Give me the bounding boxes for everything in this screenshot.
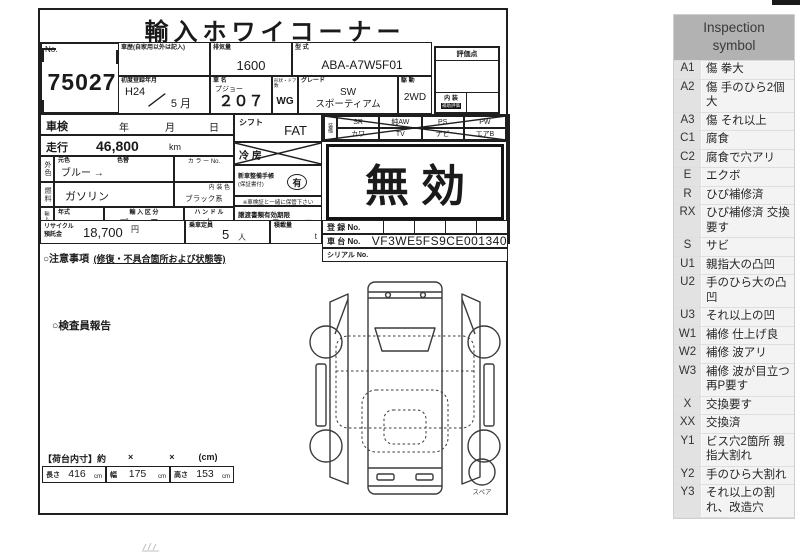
inspection-row-s: Sサビ [674, 238, 794, 256]
score-label: 評価点 [436, 48, 498, 61]
length-value: 416 [68, 468, 86, 480]
load-cell: 積載量 t [270, 220, 322, 244]
inspection-desc: ひび補修済 [702, 187, 794, 204]
inspection-row-x: X交換要す [674, 397, 794, 415]
inspection-desc: 腐食で穴アリ [702, 150, 794, 167]
shaken-label: 車検 [46, 118, 68, 134]
equipment-grid: 装備 SR 純AW PS PW カワ TV ナビ エアB [322, 114, 508, 142]
inspection-code: C2 [674, 150, 702, 167]
inspection-desc: エクボ [702, 168, 794, 185]
keep-note-cell: ※車検証と一緒に保管下さい [234, 196, 322, 206]
screen-corner-fragment [772, 0, 800, 5]
displacement-cell: 排気量 1600 [210, 42, 292, 76]
drive-value: 2WD [399, 92, 431, 103]
inspection-desc: 交換要す [702, 397, 794, 414]
recycle-label-1: リサイクル [44, 224, 74, 231]
windshield [375, 328, 435, 351]
color-cell: 元色 色替 ブルー → [54, 156, 174, 182]
displacement-label: 排気量 [213, 45, 231, 52]
inspector-report-label: ○検査員報告 [52, 318, 111, 333]
inspection-desc: 腐食 [702, 131, 794, 148]
inspection-row-a2: A2傷 手のひら2個大 [674, 80, 794, 113]
inspection-code: Y1 [674, 434, 702, 466]
inspection-row-y2: Y2手のひら大割れ [674, 467, 794, 485]
inspection-desc: それ以上の凹 [702, 308, 794, 325]
ac-cell: 冷 房 [234, 142, 322, 165]
inspection-desc: 手のひら大割れ [702, 467, 794, 484]
inspection-desc: ひび補修済 交換要す [702, 205, 794, 237]
fuel-value: ガソリン [65, 188, 109, 204]
width-box: 幅 175 cm [106, 466, 170, 483]
first-reg-month: 5 月 [171, 95, 191, 111]
inspection-code: RX [674, 205, 702, 237]
width-label: 幅 [110, 472, 117, 480]
inspection-code: S [674, 238, 702, 255]
month-label: 月 [165, 119, 175, 134]
aux-score-label: 補助評価 [441, 103, 461, 109]
inspection-code: A2 [674, 80, 702, 112]
inspection-row-rx: RXひび補修済 交換要す [674, 205, 794, 238]
year-label: 年 [119, 119, 129, 134]
inspection-desc: 傷 手のひら2個大 [702, 80, 794, 112]
inspection-code: Y2 [674, 467, 702, 484]
recycle-unit: 円 [131, 224, 139, 235]
year-model-label: 年式 [58, 210, 70, 217]
length-unit: cm [94, 474, 102, 480]
model-code-label: 型 式 [295, 45, 309, 52]
color-change-label: 色替 [117, 158, 129, 165]
inspection-row-w1: W1補修 仕上げ良 [674, 327, 794, 345]
notes-line: ○注意事項 (修復・不具合箇所および状態等) [43, 249, 226, 267]
model-code-value: ABA-A7W5F01 [293, 58, 431, 72]
right-sill [484, 364, 494, 426]
chassis-no-row: 車 台 No. VF3WE5FS9CE001340 [322, 234, 508, 248]
interior-score-label: 内 装 [444, 96, 458, 103]
auction-sheet: 輸入ホワイコーナー No. 75027 車歴(自家用以外は記入) 排気量 160… [38, 8, 508, 515]
inspection-row-e: Eエクボ [674, 168, 794, 186]
width-unit: cm [158, 474, 166, 480]
inspection-desc: 補修 波が目立つ 再P要す [702, 364, 794, 396]
inspection-row-w2: W2補修 波アリ [674, 345, 794, 363]
inspection-row-r: Rひび補修済 [674, 187, 794, 205]
grade-cell: グレード SW スポーティアム [298, 76, 398, 114]
history-cell: 車歴(自家用以外は記入) [118, 42, 210, 76]
capacity-cell: 乗車定員 5 人 [185, 220, 270, 244]
faint-stamp-mark [140, 541, 162, 553]
car-model-name: ２０７ [211, 90, 271, 111]
inspection-row-c2: C2腐食で穴アリ [674, 150, 794, 168]
mileage-row: 走行 46,800 km [40, 135, 234, 156]
inspection-row-w3: W3補修 波が目立つ 再P要す [674, 364, 794, 397]
capacity-label: 乗車定員 [189, 223, 213, 230]
interior-color-cell: 内 装 色 ブラック系 [174, 182, 234, 207]
interior-color-value: ブラック系 [175, 193, 233, 204]
body-door-cell: 形状・ドア数 WG [272, 76, 298, 114]
recycle-cell: リサイクル 預託金 18,700 円 [40, 220, 185, 244]
service-book-value: 有 [287, 174, 307, 190]
inspection-row-xx: XX交換済 [674, 415, 794, 433]
fuel-side-label: 燃料 [40, 182, 54, 207]
interior-color-label: 内 装 色 [209, 185, 230, 192]
inspection-desc: それ以上の割れ、改造穴 [702, 485, 794, 517]
first-reg-year: H24 [125, 86, 145, 98]
inspection-row-y3: Y3それ以上の割れ、改造穴 [674, 485, 794, 518]
service-book-sub: (保証書付) [238, 180, 264, 188]
reg-no-row: 登 録 No. [322, 220, 508, 234]
inspection-row-c1: C1腐食 [674, 131, 794, 149]
cross-out-icon [235, 143, 321, 164]
height-value: 153 [196, 468, 214, 480]
transfer-label: 譲渡書類有効期限 [238, 209, 290, 219]
capacity-unit: 人 [238, 232, 246, 243]
inspection-symbol-panel: Inspection symbol A1傷 拳大A2傷 手のひら2個大A3傷 そ… [673, 14, 795, 519]
mileage-unit: km [169, 142, 181, 152]
inspection-desc: 手のひら大の凸凹 [702, 275, 794, 307]
inspection-code: W1 [674, 327, 702, 344]
serial-no-row: シリアル No. [322, 248, 508, 262]
inspection-code: Y3 [674, 485, 702, 517]
keep-note: ※車検証と一緒に保管下さい [235, 198, 321, 206]
height-label: 高さ [174, 472, 188, 480]
car-name-label: 車 名 [213, 78, 227, 85]
car-body [368, 282, 442, 494]
inspection-code: E [674, 168, 702, 185]
length-box: 長さ 416 cm [42, 466, 106, 483]
inspection-symbol-table: A1傷 拳大A2傷 手のひら2個大A3傷 それ以上C1腐食C2腐食で穴アリEエク… [674, 61, 794, 518]
chassis-no-label: 車 台 No. [323, 236, 372, 247]
color-no-cell: カ ラ ー No. [174, 156, 234, 182]
service-book-label: 新車整備手帳 [238, 171, 274, 180]
inspection-desc: サビ [702, 238, 794, 255]
inspection-row-y1: Y1ビス穴2箇所 親指大割れ [674, 434, 794, 467]
inspection-row-u2: U2手のひら大の凸凹 [674, 275, 794, 308]
score-bottom-row: 内 装 補助評価 [436, 92, 498, 112]
reg-no-label: 登 録 No. [323, 222, 381, 233]
inspection-code: X [674, 397, 702, 414]
inspection-code: C1 [674, 131, 702, 148]
wheel-rear-right [468, 430, 500, 462]
inspection-row-a1: A1傷 拳大 [674, 61, 794, 79]
inspection-row-u1: U1親指大の凸凹 [674, 257, 794, 275]
cm-caption: (cm) [199, 452, 218, 465]
inspection-row-a3: A3傷 それ以上 [674, 113, 794, 131]
inspection-code: W2 [674, 345, 702, 362]
grade-label: グレード [301, 78, 325, 85]
recycle-fee: 18,700 [83, 225, 123, 240]
serial-no-label: シリアル No. [323, 250, 381, 260]
inspection-desc: 補修 仕上げ良 [702, 327, 794, 344]
diagonal-slash: ／ [147, 86, 166, 112]
first-reg-cell: 初度登録年月 H24 ／ 5 月 [118, 76, 210, 114]
inspection-row-u3: U3それ以上の凹 [674, 308, 794, 326]
inspection-desc: 親指大の凸凹 [702, 257, 794, 274]
shift-value: FAT [284, 123, 307, 138]
load-label: 積載量 [274, 223, 292, 230]
inspection-code: U2 [674, 275, 702, 307]
cargo-caption: 【荷台内寸】約 [43, 452, 106, 465]
inspection-code: A1 [674, 61, 702, 78]
color-value: ブルー → [61, 164, 104, 179]
history-label: 車歴(自家用以外は記入) [121, 45, 185, 52]
drive-label: 駆 動 [401, 78, 415, 85]
aux-score-value-cell [467, 93, 498, 112]
height-unit: cm [222, 474, 230, 480]
mileage-label: 走行 [46, 139, 68, 155]
model-code-cell: 型 式 ABA-A7W5F01 [292, 42, 432, 76]
cargo-dims-caption: 【荷台内寸】約 × × (cm) [43, 452, 243, 465]
inspection-code: XX [674, 415, 702, 432]
recycle-label-2: 預託金 [44, 232, 62, 239]
car-damage-diagram: スペア [302, 272, 508, 504]
body-door-label: 形状・ドア数 [274, 78, 297, 89]
first-reg-label: 初度登録年月 [121, 78, 157, 85]
wheel-rear-left [310, 430, 342, 462]
body-door-value: WG [273, 96, 297, 107]
inspection-desc: ビス穴2箇所 親指大割れ [702, 434, 794, 466]
mileage-value: 46,800 [96, 138, 139, 154]
length-label: 長さ [46, 472, 60, 480]
day-label: 日 [209, 119, 219, 134]
height-box: 高さ 153 cm [170, 466, 234, 483]
inspection-code: U1 [674, 257, 702, 274]
inspection-symbol-header: Inspection symbol [674, 15, 794, 61]
inspection-desc: 傷 拳大 [702, 61, 794, 78]
inspection-desc: 傷 それ以上 [702, 113, 794, 130]
shift-cell: シフト FAT [234, 114, 322, 142]
color-no-label: カ ラ ー No. [175, 159, 233, 166]
inspection-code: W3 [674, 364, 702, 396]
width-value: 175 [129, 468, 147, 480]
invalid-stamp: 無効 [326, 144, 504, 220]
notes-sub-label: (修復・不具合箇所および状態等) [94, 254, 226, 264]
drive-cell: 駆 動 2WD [398, 76, 432, 114]
left-sill [316, 364, 326, 426]
shift-label: シフト [239, 118, 263, 127]
inspection-desc: 補修 波アリ [702, 345, 794, 362]
equipment-cross-out-icon [324, 116, 506, 140]
spare-tire-label: スペア [472, 488, 492, 496]
auction-number: 75027 [46, 54, 118, 110]
capacity-value: 5 [222, 227, 229, 242]
times-mark-1: × [128, 452, 133, 465]
car-name-cell: 車 名 プジョー ２０７ [210, 76, 272, 114]
inspection-desc: 交換済 [702, 415, 794, 432]
score-box: 評価点 内 装 補助評価 [434, 46, 500, 114]
inspection-code: U3 [674, 308, 702, 325]
fuel-cell: ガソリン [54, 182, 174, 207]
service-book-cell: 新車整備手帳 (保証書付) 有 [234, 165, 322, 196]
spare-tire [469, 459, 495, 485]
ext-color-side-label: 外色 [40, 156, 54, 182]
inspection-code: A3 [674, 113, 702, 130]
load-unit: t [315, 232, 317, 241]
displacement-value: 1600 [211, 58, 291, 73]
inspection-code: R [674, 187, 702, 204]
times-mark-2: × [169, 452, 174, 465]
notes-label: ○注意事項 [43, 254, 89, 265]
grade-line2: スポーティアム [299, 96, 397, 110]
shaken-row: 車検 年 月 日 [40, 114, 234, 135]
chassis-no-value: VF3WE5FS9CE001340 [372, 234, 507, 248]
